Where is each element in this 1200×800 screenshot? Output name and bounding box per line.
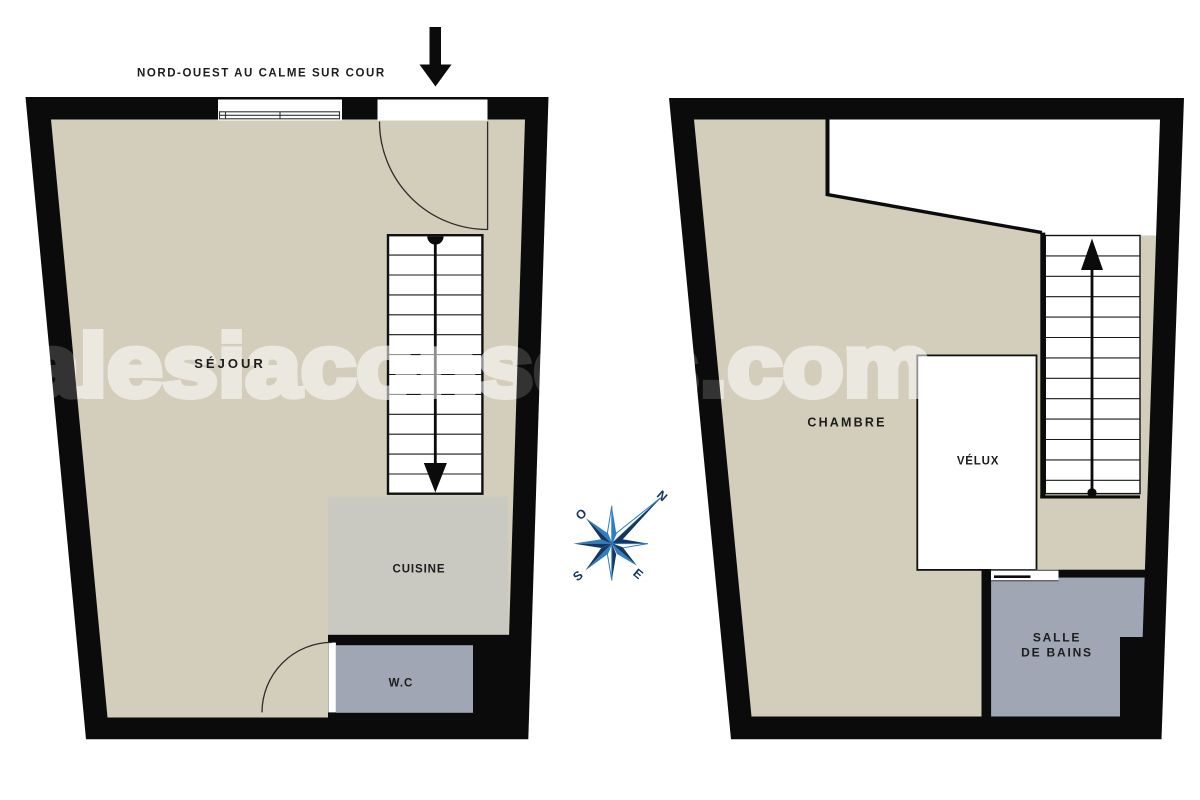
svg-text:W.C: W.C <box>389 678 414 690</box>
svg-text:alesiaconseils.com: alesiaconseils.com <box>24 316 932 415</box>
svg-text:VÉLUX: VÉLUX <box>957 455 999 468</box>
svg-text:CUISINE: CUISINE <box>393 564 446 576</box>
svg-text:DE BAINS: DE BAINS <box>1021 646 1093 660</box>
svg-text:CHAMBRE: CHAMBRE <box>807 416 886 430</box>
svg-text:NORD-OUEST AU CALME SUR COUR: NORD-OUEST AU CALME SUR COUR <box>137 68 386 80</box>
svg-text:SÉJOUR: SÉJOUR <box>194 356 265 371</box>
svg-text:SALLE: SALLE <box>1033 631 1081 645</box>
